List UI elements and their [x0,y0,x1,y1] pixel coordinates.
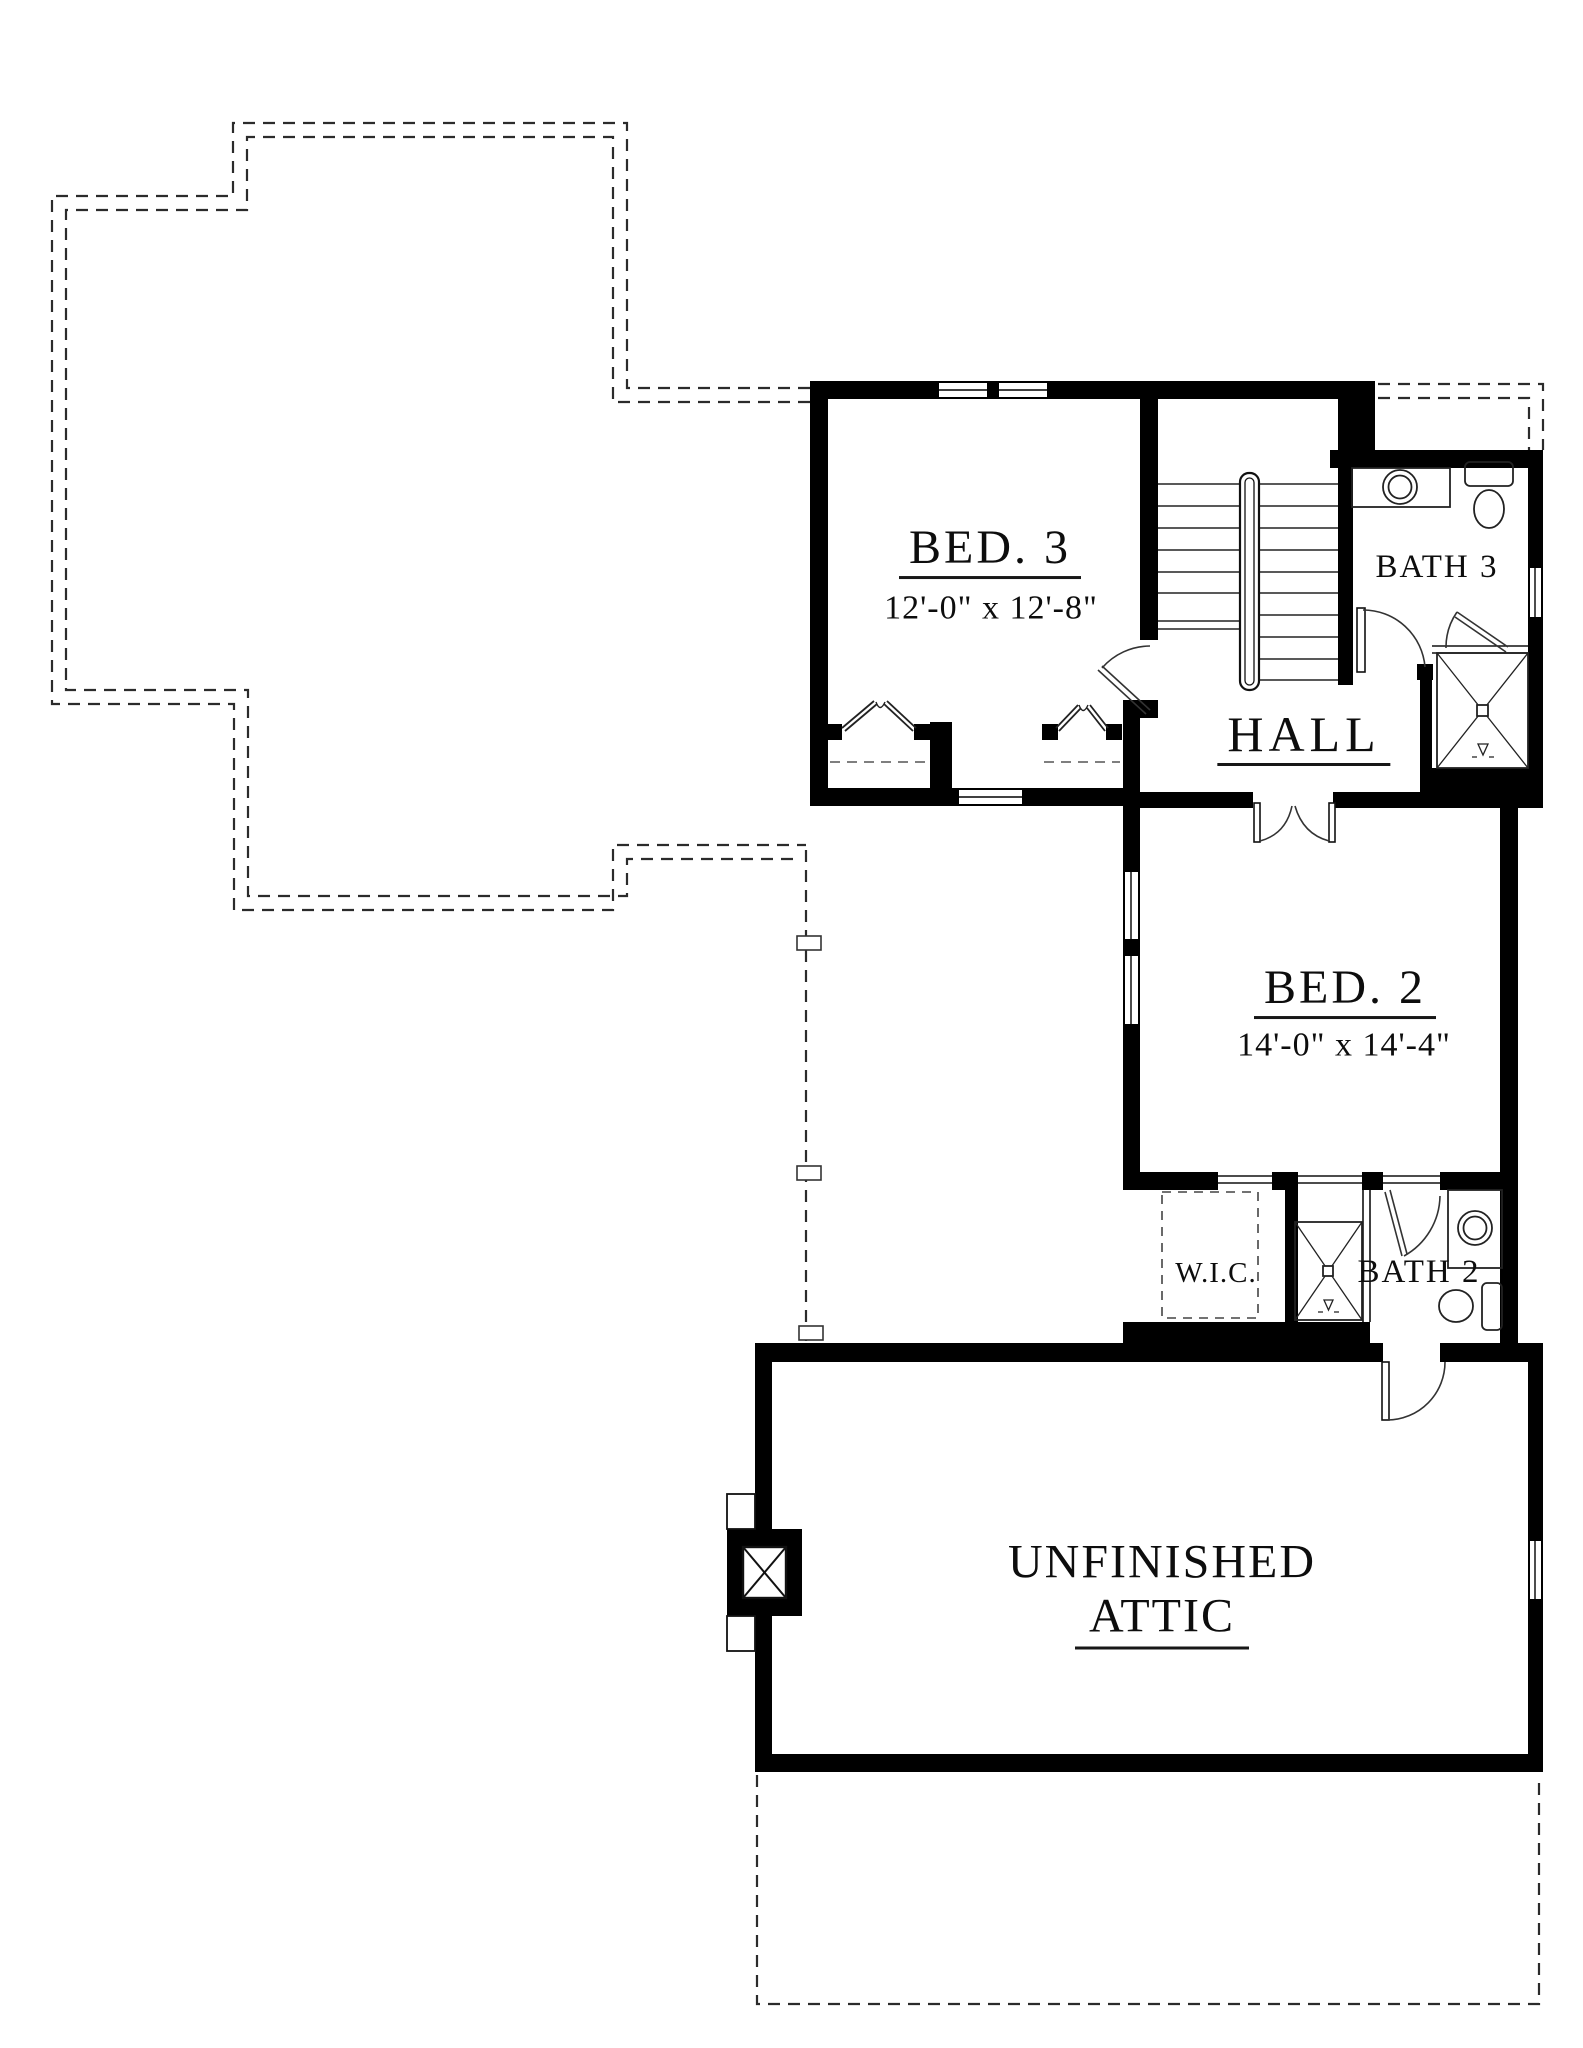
chimney-ledge [727,1616,755,1651]
bed3-closets [830,701,1120,762]
roof-outline-ticks [797,936,823,1340]
room-label-bath2: BATH 2 [1358,1255,1481,1289]
toilet-icon [1474,490,1504,528]
room-label-wic: W.I.C. [1175,1258,1256,1288]
window-icon [998,382,1048,398]
room-name: BED. 3 [899,523,1081,579]
shower-drain [1318,1300,1339,1312]
roof-outline-below-attic [757,1775,1539,2004]
post-tick-icon [797,936,821,950]
window-icon [1124,955,1139,1025]
shower-drain [1472,744,1494,757]
floor-plan-drawing [0,0,1583,2048]
attic-line2: ATTIC [1075,1591,1249,1650]
bifold-door-icon [842,701,916,731]
chimney-ledge [727,1494,755,1529]
room-name: BED. 2 [1254,963,1436,1019]
door-bath3 [1357,608,1425,672]
window-icon [1529,1540,1542,1600]
room-label-bed2: BED. 2 [1254,963,1436,1019]
room-dims-bed3: 12'-0" x 12'-8" [884,590,1098,625]
window-icon [958,789,1023,805]
sink-icon [1389,476,1412,499]
door-attic [1382,1362,1445,1420]
room-label-attic: UNFINISHED ATTIC [1008,1537,1316,1650]
bifold-door-icon [1056,705,1108,731]
window-icon [1529,567,1542,618]
room-label-bath3: BATH 3 [1376,550,1499,584]
roof-outline-upper-left [52,123,810,1341]
roof-outline-upper-right-porch [1378,384,1543,450]
stair-handrail [1240,473,1259,690]
room-label-hall: HALL [1217,708,1390,766]
shower-south-wall [1427,768,1543,808]
toilet-tank [1482,1283,1502,1330]
sink-icon [1464,1217,1487,1240]
window-icon [938,382,988,398]
room-name: HALL [1217,708,1390,766]
vanity-counter [1352,468,1450,507]
shower-icon [1295,1222,1362,1320]
shower-icon [1437,653,1528,768]
post-tick-icon [797,1166,821,1180]
door-bath2 [1385,1190,1440,1256]
toilet-icon [1439,1290,1473,1322]
chimney-flue-icon [743,1547,786,1598]
room-label-bed3: BED. 3 [899,523,1081,579]
wic-shelf-outline [1162,1192,1258,1318]
floor-plan-sheet: BED. 3 12'-0" x 12'-8" BATH 3 HALL BED. … [0,0,1583,2048]
post-tick-icon [799,1326,823,1340]
window-icon [1124,871,1139,940]
room-dims-bed2: 14'-0" x 14'-4" [1237,1027,1451,1062]
double-door-bed2 [1254,803,1335,842]
attic-line1: UNFINISHED [1008,1537,1316,1589]
